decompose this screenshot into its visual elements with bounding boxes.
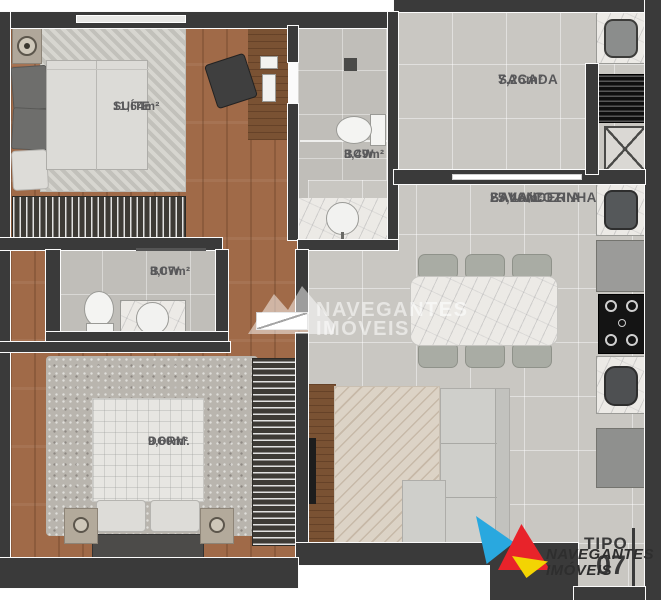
dorm-lamp-left [73, 517, 89, 533]
suite-lamp-center [24, 43, 30, 49]
shower-drain [344, 58, 357, 71]
tv [308, 438, 316, 504]
desk-monitor [260, 56, 278, 69]
sofa-back [495, 389, 509, 549]
bcw-suite-faucet [341, 232, 344, 240]
wall-suite-bcw-upper [288, 26, 298, 62]
grill [598, 74, 645, 123]
dorm-headboard [92, 534, 204, 558]
floor-plan: SUÍTE 11,64m² SACADA 7,26m² BCW 3,49m² S… [0, 0, 661, 600]
wall-bcw-sacada [388, 12, 398, 242]
dorm-lamp-right [209, 517, 225, 533]
suite-pillow-dark-2 [11, 107, 49, 151]
brand-line2: IMÓVEIS [546, 562, 612, 579]
suite-bed-fold [96, 61, 97, 171]
wall-dorm-bottom [0, 558, 298, 588]
dorm-area: 9,60m² [148, 434, 188, 449]
bcw-suite-sink [326, 202, 359, 235]
sofa-main [440, 388, 510, 548]
wall-sala-left-lower [296, 333, 308, 543]
burner-3 [605, 334, 617, 346]
suite-bed-hem [47, 69, 149, 70]
bcw-social-area: 3,07m² [150, 264, 190, 279]
suite-bed [46, 60, 148, 170]
toilet-suite-tank [370, 114, 386, 146]
suite-wardrobe [12, 196, 186, 238]
burner-4 [626, 334, 638, 346]
sofa-cushion-line-2 [441, 497, 497, 498]
wall-entry-recess-bottom [574, 587, 645, 600]
wall-left [0, 12, 10, 558]
burner-1 [605, 300, 617, 312]
sala-area: 25,46m² [490, 190, 543, 206]
dorm-pillow-1 [96, 500, 146, 532]
wall-bcw-social-right [216, 250, 228, 342]
wall-right [645, 0, 661, 600]
wall-top-main [8, 12, 394, 28]
suite-window [76, 15, 186, 23]
wall-dorm-top [0, 342, 230, 352]
suite-pillow-light [11, 149, 49, 191]
shaft-box [604, 126, 646, 172]
dorm-duvet [92, 398, 204, 502]
wall-bcw-social-bottom [46, 332, 228, 342]
suite-area: 11,64m² [113, 99, 160, 114]
dorm-wardrobe [252, 358, 298, 546]
wall-bcw-suite-bottom [298, 240, 398, 250]
toilet-social-bowl [84, 291, 114, 327]
burner-2 [626, 300, 638, 312]
laundry-sink [604, 366, 638, 406]
watermark-line2: IMÓVEIS [316, 318, 410, 341]
burner-center [618, 319, 626, 327]
suite-pillow-dark-1 [11, 65, 50, 111]
bcw-social-door-track [136, 248, 206, 251]
sofa-cushion-line-1 [441, 443, 497, 444]
wall-sacada-inner [586, 64, 598, 174]
bcw-suite-area: 3,49m² [344, 147, 384, 162]
desk-keyboard [262, 74, 276, 102]
sacada-glass-door [452, 174, 582, 180]
washing-machine [596, 428, 645, 488]
kitchen-appliance [596, 240, 645, 292]
sacada-area: 7,26m² [498, 72, 543, 88]
brand-line1: NAVEGANTES [546, 546, 654, 563]
sofa-chaise [402, 480, 446, 548]
bcw-social-sink [136, 302, 169, 335]
kitchen-sink [604, 190, 638, 230]
wall-suite-bcw-lower [288, 104, 298, 240]
wall-top-sacada [394, 0, 646, 12]
toilet-suite-bowl [336, 116, 372, 144]
wall-bcw-social-left [46, 250, 60, 342]
sacada-sink [604, 19, 638, 58]
dorm-pillow-2 [150, 500, 200, 532]
bcw-suite-door-gap [288, 62, 298, 104]
